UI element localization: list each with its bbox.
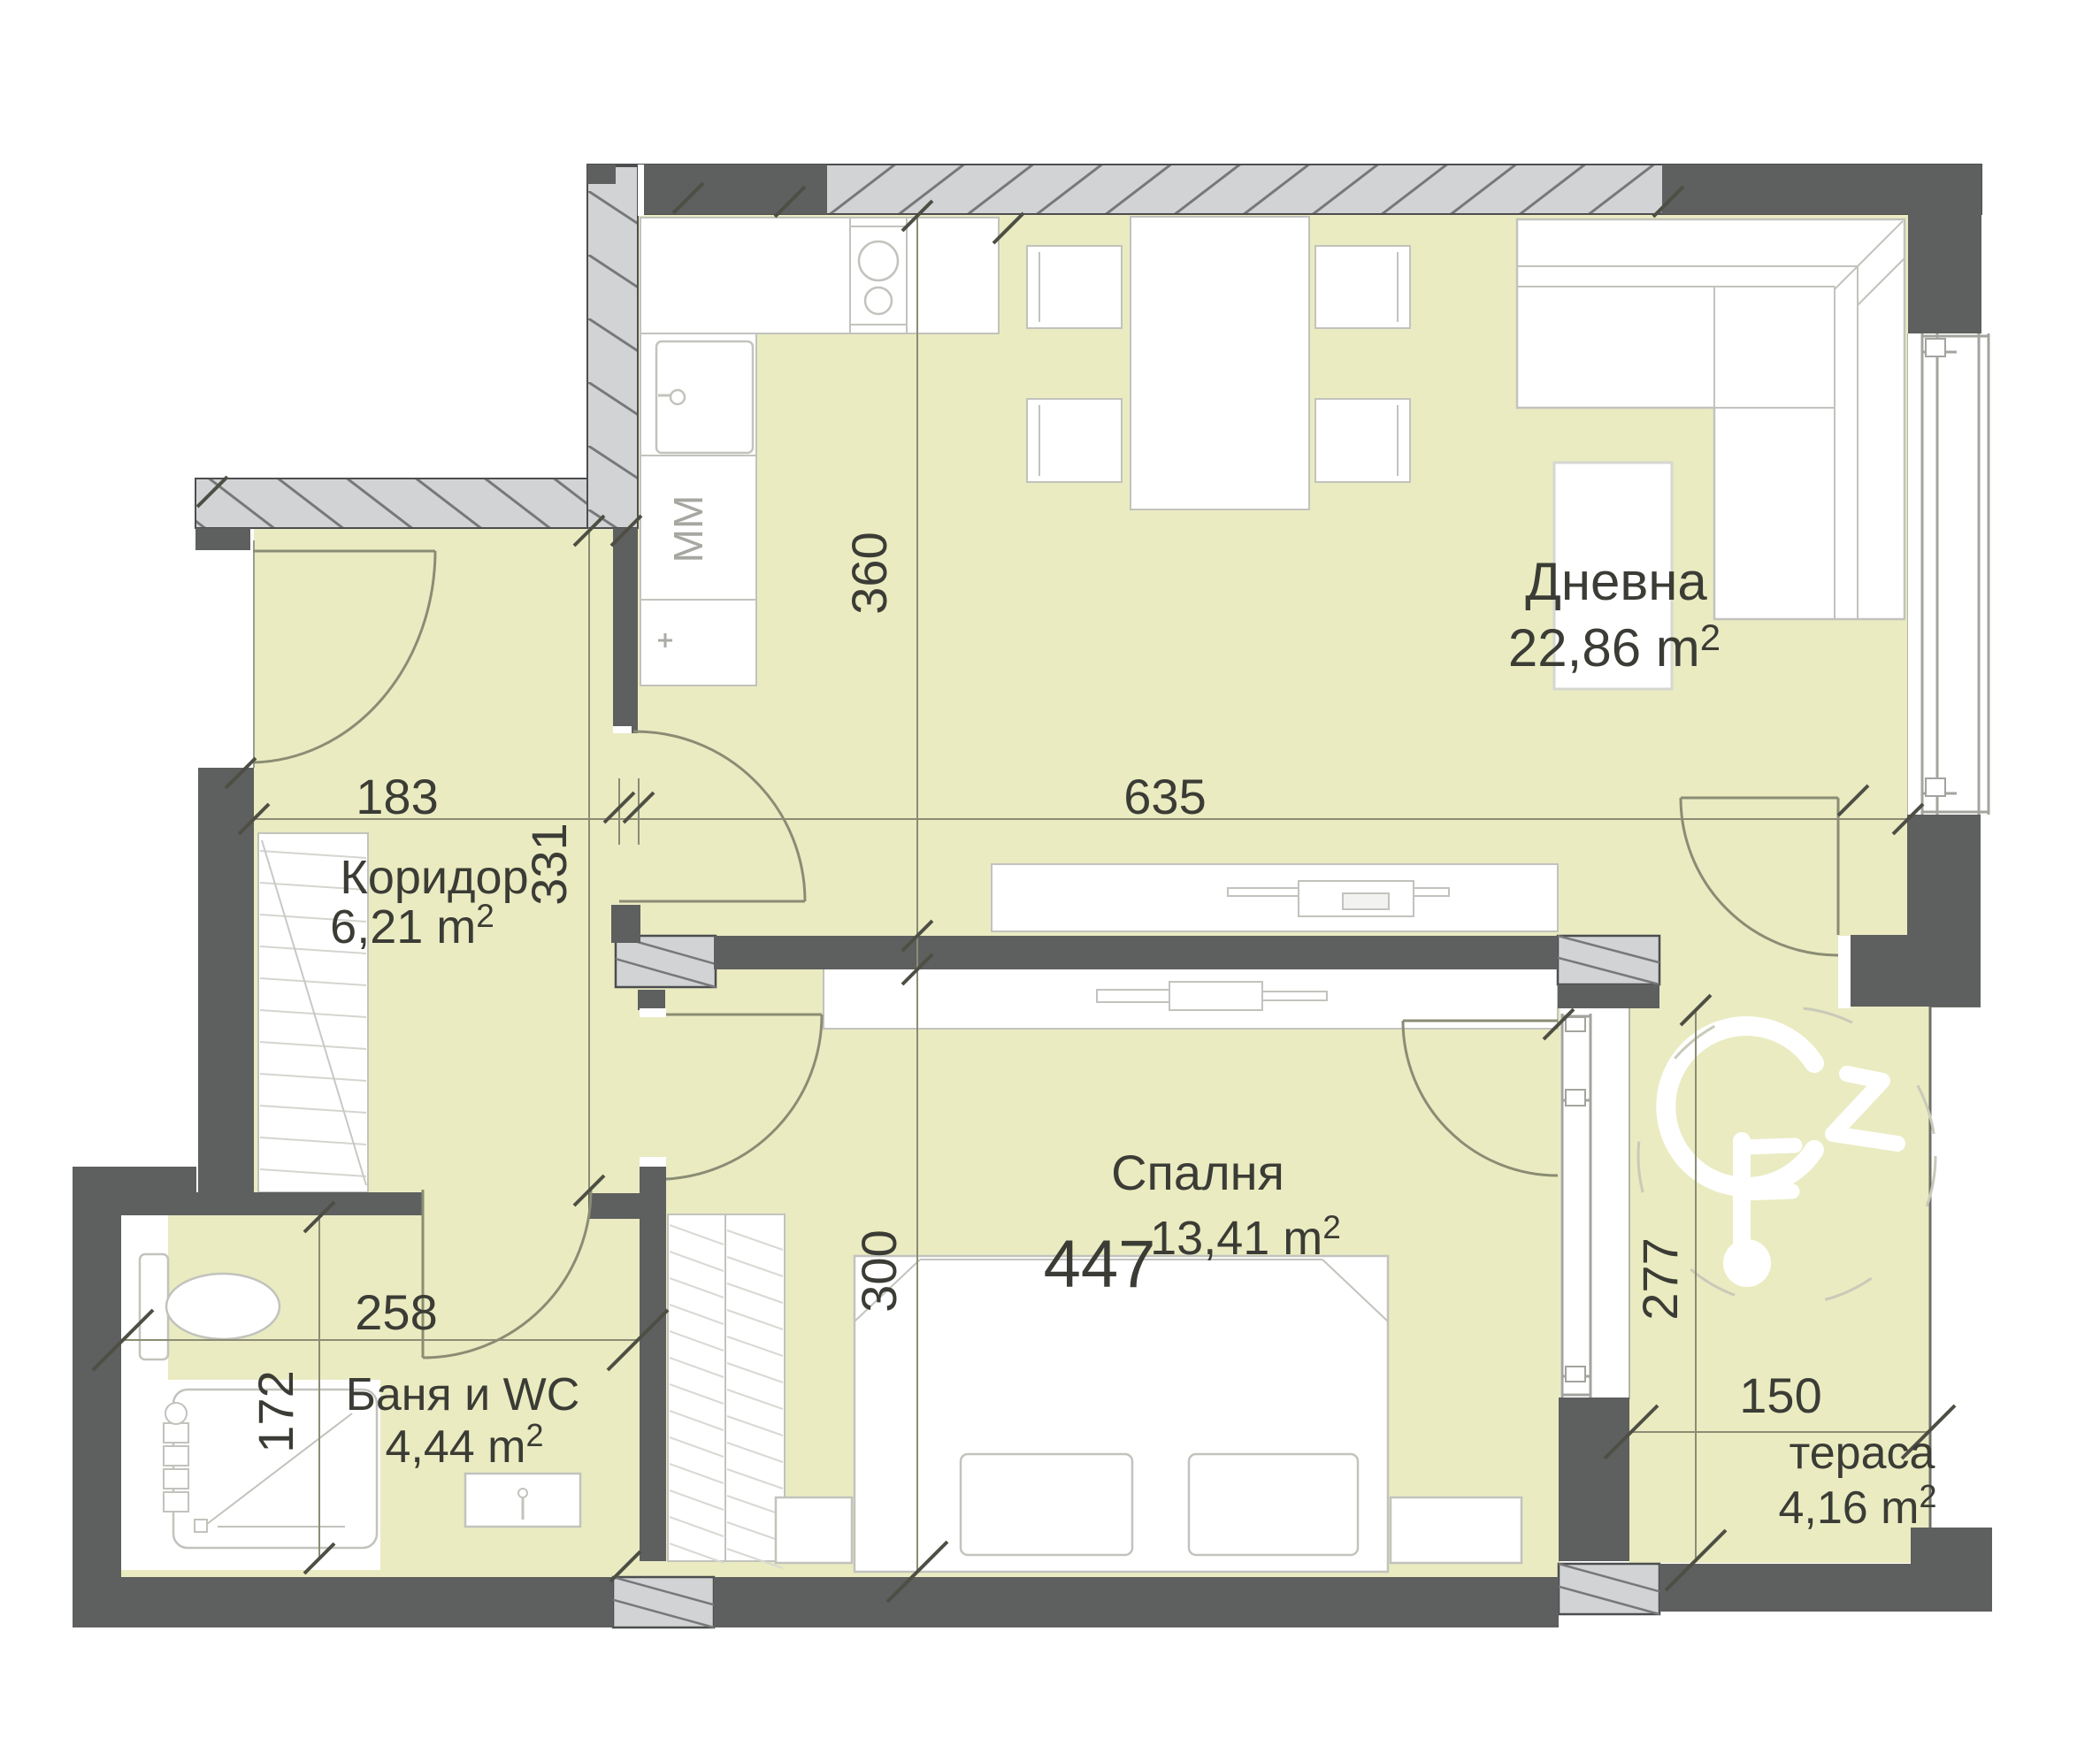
svg-text:6,21 m2: 6,21 m2	[330, 898, 494, 953]
svg-text:4,16 m2: 4,16 m2	[1778, 1478, 1936, 1534]
svg-text:MM: MM	[665, 495, 711, 563]
svg-text:22,86 m2: 22,86 m2	[1508, 616, 1721, 678]
svg-text:тераса: тераса	[1790, 1428, 1935, 1479]
svg-text:635: 635	[1123, 769, 1206, 824]
svg-text:13,41 m2: 13,41 m2	[1150, 1209, 1341, 1265]
svg-text:331: 331	[521, 823, 577, 905]
svg-text:Спалня: Спалня	[1111, 1145, 1284, 1200]
svg-text:447: 447	[1044, 1227, 1156, 1302]
svg-text:150: 150	[1739, 1367, 1821, 1423]
svg-text:277: 277	[1632, 1237, 1688, 1320]
svg-text:258: 258	[355, 1284, 437, 1340]
svg-text:300: 300	[851, 1229, 907, 1312]
svg-text:360: 360	[841, 532, 897, 614]
svg-text:183: 183	[356, 769, 438, 824]
svg-text:172: 172	[248, 1370, 303, 1452]
svg-text:Дневна: Дневна	[1525, 552, 1707, 611]
svg-text:Баня и WC: Баня и WC	[346, 1369, 580, 1421]
svg-text:Коридор: Коридор	[340, 851, 528, 904]
svg-text:4,44 m2: 4,44 m2	[385, 1417, 543, 1473]
